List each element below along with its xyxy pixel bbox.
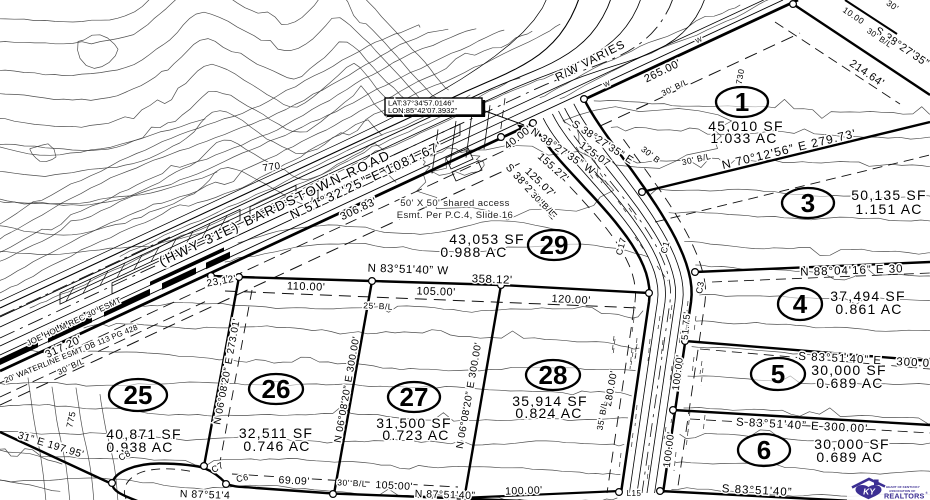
svg-text:30' B/L: 30' B/L bbox=[337, 477, 367, 489]
svg-text:L15: L15 bbox=[627, 489, 642, 498]
svg-text:69.09': 69.09' bbox=[278, 474, 310, 488]
svg-text:300.0: 300.0 bbox=[896, 356, 930, 370]
svg-text:N 87°51'4: N 87°51'4 bbox=[180, 488, 231, 500]
svg-text:N 87°51'40”: N 87°51'40” bbox=[415, 488, 476, 500]
svg-text:120.00': 120.00' bbox=[551, 293, 591, 307]
svg-text:0.689 AC: 0.689 AC bbox=[816, 449, 883, 465]
svg-text:100.00': 100.00' bbox=[505, 484, 543, 497]
svg-text:5: 5 bbox=[771, 359, 785, 389]
svg-text:1: 1 bbox=[735, 87, 749, 117]
svg-text:LON:85°42'07.3932”: LON:85°42'07.3932” bbox=[388, 106, 458, 115]
svg-text:0.988 AC: 0.988 AC bbox=[440, 244, 507, 260]
svg-text:3: 3 bbox=[801, 188, 815, 218]
svg-text:110.00': 110.00' bbox=[287, 280, 326, 293]
svg-text:6: 6 bbox=[757, 435, 771, 465]
svg-text:0.861 AC: 0.861 AC bbox=[835, 301, 902, 317]
svg-text:105.00': 105.00' bbox=[375, 479, 413, 493]
svg-text:KY: KY bbox=[863, 487, 876, 497]
svg-text:1.151 AC: 1.151 AC bbox=[855, 201, 922, 217]
svg-text:0.824 AC: 0.824 AC bbox=[515, 405, 582, 421]
svg-text:50' X 50' shared access: 50' X 50' shared access bbox=[400, 198, 509, 209]
svg-text:26: 26 bbox=[262, 374, 291, 404]
svg-text:REALTORS: REALTORS bbox=[884, 492, 924, 500]
svg-text:25: 25 bbox=[124, 380, 153, 410]
svg-text:105.00': 105.00' bbox=[416, 285, 456, 298]
svg-text:0.746 AC: 0.746 AC bbox=[243, 438, 310, 454]
svg-text:27: 27 bbox=[400, 382, 429, 412]
svg-text:C3: C3 bbox=[694, 280, 706, 294]
svg-text:0.723 AC: 0.723 AC bbox=[382, 427, 449, 443]
svg-text:4: 4 bbox=[793, 289, 808, 319]
svg-text:25' B/L: 25' B/L bbox=[363, 300, 393, 312]
svg-text:28: 28 bbox=[539, 360, 568, 390]
svg-text:29: 29 bbox=[540, 230, 569, 260]
svg-text:358.12': 358.12' bbox=[471, 273, 512, 286]
svg-text:0.938 AC: 0.938 AC bbox=[106, 439, 173, 455]
svg-text:0.689 AC: 0.689 AC bbox=[816, 375, 883, 391]
svg-text:1.033 AC: 1.033 AC bbox=[710, 130, 777, 146]
svg-text:Esmt. Per P.C.4, Slide 16: Esmt. Per P.C.4, Slide 16 bbox=[397, 210, 514, 221]
